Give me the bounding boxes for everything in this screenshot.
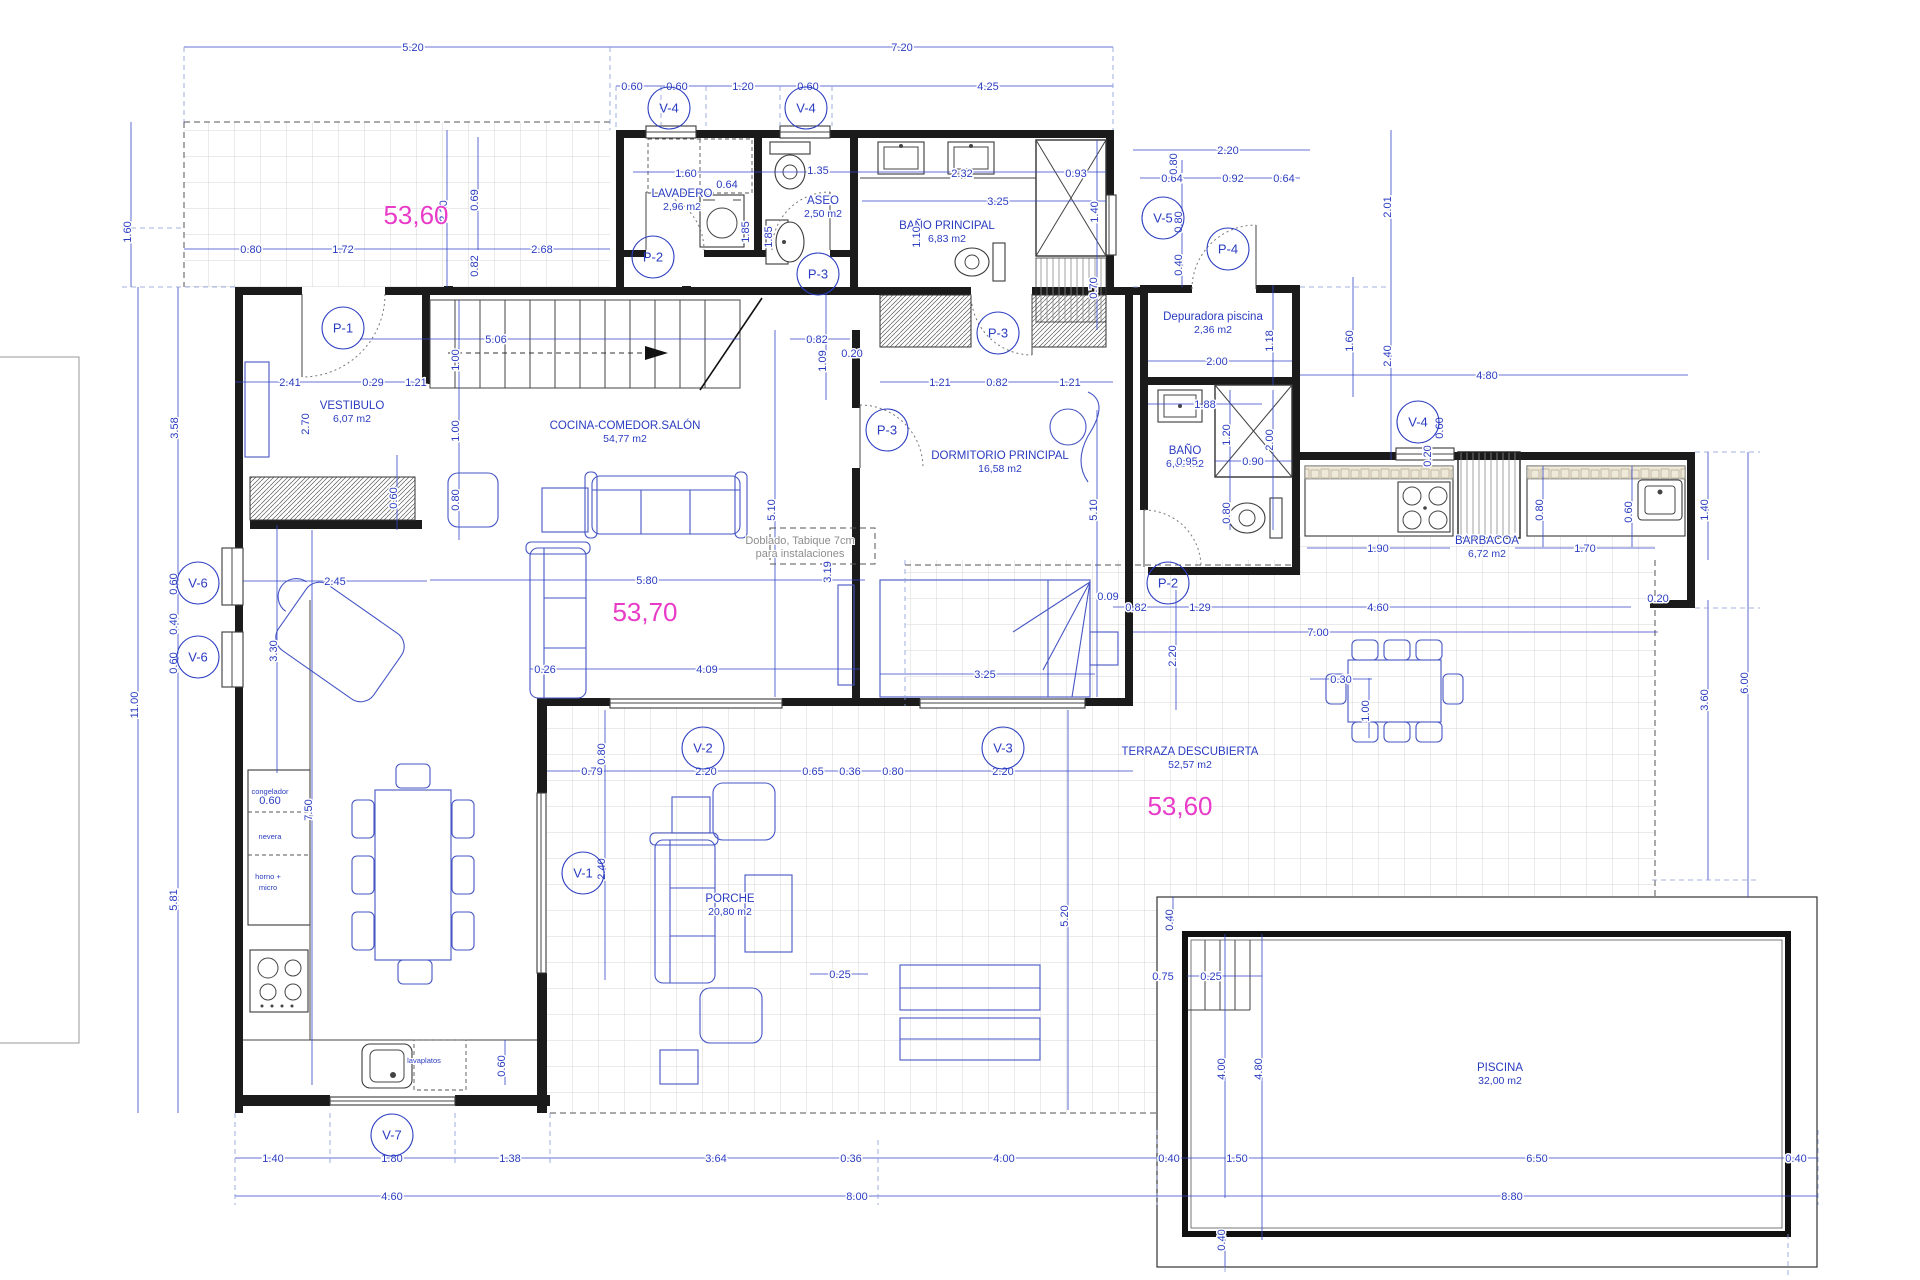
opening-tag-label: P-1 (333, 321, 353, 336)
dimension-label: 1.20 (732, 81, 753, 93)
dimension-label: 0.93 (1065, 168, 1086, 180)
dimension-label: 1.60 (1344, 330, 1356, 351)
room-area: 6,72 m2 (1468, 548, 1506, 560)
dimension-label: 0.20 (841, 348, 862, 360)
room-name: PORCHE (705, 893, 755, 905)
window-v7 (330, 1097, 455, 1105)
dimension-label: 0.70 (1088, 277, 1100, 298)
dimension-label: 4.09 (696, 664, 717, 676)
dimension-label: 3.30 (268, 640, 280, 661)
room-name: BARBACOA (1455, 535, 1519, 547)
dimension-label: 6.00 (1739, 672, 1751, 693)
window-v6-a (222, 548, 243, 605)
dimension-label: 0.40 (1785, 1153, 1806, 1165)
room-area: 6,83 m2 (928, 233, 966, 245)
dimension-label: 4.80 (1253, 1058, 1265, 1079)
dimension-label: 1.90 (1367, 543, 1388, 555)
dimension-label: 1.21 (405, 377, 426, 389)
dimension-label: 0.82 (469, 255, 481, 276)
hall-cabinet (245, 362, 269, 457)
opening-tag-label: V-1 (573, 866, 593, 881)
dimension-label: 0.82 (986, 377, 1007, 389)
dimension-label: 3.25 (987, 196, 1008, 208)
dimension-label: 0.79 (581, 766, 602, 778)
dimension-label: 1.85 (740, 221, 752, 242)
floor-plan-drawing: LAVADERO2,96 m2ASEO2,50 m2BAÑO PRINCIPAL… (0, 0, 1920, 1280)
room-area: 52,57 m2 (1168, 759, 1212, 771)
window-v2 (610, 699, 782, 708)
dimension-label: 1.60 (122, 221, 134, 242)
dimension-label: 0.29 (362, 377, 383, 389)
dimension-label: 1.88 (1194, 399, 1215, 411)
dimension-label: 1.00 (450, 420, 462, 441)
dimension-label: 5.20 (402, 42, 423, 54)
dimension-label: 1.85 (763, 226, 775, 247)
dimension-label: 0.40 (1173, 254, 1185, 275)
dimension-label: 2.20 (695, 766, 716, 778)
kitchen-table (352, 764, 474, 984)
dimension-label: 5.06 (485, 334, 506, 346)
dimension-label: 0.90 (1242, 456, 1263, 468)
sink-main-1 (878, 142, 924, 174)
dimension-label: 2.40 (1382, 345, 1394, 366)
door-p2-bath-arc (1144, 510, 1201, 567)
dimension-label: 0.82 (1125, 602, 1146, 614)
dimension-label: 2.32 (951, 168, 972, 180)
dimension-label: 2.00 (1206, 356, 1227, 368)
dimension-label: 1.29 (1189, 602, 1210, 614)
dimension-label: 1.21 (1059, 377, 1080, 389)
construction-note: Doblado, Tabique 7cmpara instalaciones (745, 535, 854, 560)
window-v1 (537, 793, 546, 973)
window-v6-b (222, 632, 243, 687)
opening-tag-label: V-6 (188, 650, 208, 665)
room-name: ASEO (807, 195, 839, 207)
dimension-label: 7.50 (303, 799, 315, 820)
surface-area-label: 53,70 (612, 597, 677, 627)
dimension-label: 4.60 (1367, 602, 1388, 614)
room-name: LAVADERO (652, 188, 713, 200)
dimension-label: 1.40 (1089, 201, 1101, 222)
dimension-label: 7.20 (891, 42, 912, 54)
hob-kitchen (250, 950, 308, 1012)
room-area: 2,96 m2 (663, 201, 701, 213)
dimension-label: 0.40 (1158, 1153, 1179, 1165)
chaise (1081, 392, 1099, 482)
appliance-label: horno + (255, 872, 281, 881)
dimension-label: 5.10 (1088, 499, 1100, 520)
room-name: VESTIBULO (320, 400, 385, 412)
surface-area-label: 53,60 (383, 200, 448, 230)
dimension-label: 0.09 (1097, 591, 1118, 603)
opening-tag-label: P-3 (877, 423, 897, 438)
opening-tag-label: P-2 (1158, 576, 1178, 591)
dimension-label: 3.60 (1699, 689, 1711, 710)
dimension-label: 0.80 (450, 489, 462, 510)
window-v4-a (646, 126, 696, 138)
side-table (542, 488, 588, 532)
dimension-label: 4.00 (1216, 1058, 1228, 1079)
dimension-label: 8.00 (846, 1191, 867, 1203)
dimension-label: 1.10 (911, 226, 923, 247)
bbq-sink (1638, 480, 1682, 520)
window-v3 (920, 699, 1085, 708)
door-p1-arc (302, 294, 385, 377)
door-p4-arc (1192, 225, 1256, 289)
dimension-label: 0.36 (839, 766, 860, 778)
dimension-label: 1.21 (929, 377, 950, 389)
dimension-label: 3.58 (169, 417, 181, 438)
dimension-label: 0.64 (716, 179, 737, 191)
room-name: TERRAZA DESCUBIERTA (1122, 746, 1259, 758)
dimension-label: 0.65 (802, 766, 823, 778)
bbq-stone-left (1305, 466, 1453, 479)
dimension-label: 2.20 (1167, 645, 1179, 666)
dimension-label: 1.38 (499, 1153, 520, 1165)
dimension-label: 1.00 (450, 349, 462, 370)
dimension-label: 5.80 (636, 575, 657, 587)
appliance-label: micro (259, 883, 277, 892)
dimension-label: 8.80 (1501, 1191, 1522, 1203)
floor-plan-canvas: LAVADERO2,96 m2ASEO2,50 m2BAÑO PRINCIPAL… (0, 0, 1920, 1280)
dimension-label: 0.95 (1176, 456, 1197, 468)
dimension-label: 0.80 (882, 766, 903, 778)
dimension-label: 0.40 (1216, 1229, 1228, 1250)
window-v4-b (780, 126, 830, 138)
bbq-hob (1398, 482, 1450, 532)
dimension-label: 0.80 (1221, 502, 1233, 523)
dimension-label: 2.45 (324, 576, 345, 588)
washing-machine (700, 195, 744, 247)
dimension-label: 1.09 (817, 350, 829, 371)
opening-tag-label: V-4 (1408, 415, 1428, 430)
dimension-label: 1.50 (1226, 1153, 1247, 1165)
dimension-label: 0.75 (1152, 971, 1173, 983)
pool-side-tiles (905, 897, 1157, 1113)
dimension-label: 4.00 (993, 1153, 1014, 1165)
dimension-label: 0.80 (1168, 153, 1180, 174)
dimension-label: 2.70 (300, 413, 312, 434)
room-name: PISCINA (1477, 1062, 1523, 1074)
dimension-label: 2.41 (279, 377, 300, 389)
dimension-label: 4.25 (977, 81, 998, 93)
dimension-label: 0.20 (1422, 445, 1434, 466)
dimension-label: 0.60 (496, 1055, 508, 1076)
opening-tag-label: V-5 (1153, 211, 1173, 226)
dimension-label: 1.35 (807, 165, 828, 177)
door-p3-closet-arc (971, 294, 1032, 355)
dimension-label: 0.40 (168, 613, 180, 634)
appliance-label: nevera (259, 832, 283, 841)
dimension-label: 4.80 (1476, 370, 1497, 382)
dimension-label: 1.00 (1360, 700, 1372, 721)
bbq-chimney (1458, 452, 1520, 538)
room-area: 2,50 m2 (804, 208, 842, 220)
opening-tag-label: V-3 (993, 741, 1013, 756)
surface-area-label: 53,60 (1147, 791, 1212, 821)
dimension-label: 0.20 (1647, 593, 1668, 605)
opening-tag-label: V-4 (659, 101, 679, 116)
room-area: 16,58 m2 (978, 463, 1022, 475)
terraza-tiles (905, 537, 1655, 897)
toilet-aseo (770, 142, 810, 189)
room-area: 6,07 m2 (333, 413, 371, 425)
dimension-label: 11.00 (129, 692, 141, 719)
dimension-label: 1.18 (1264, 330, 1276, 351)
toilet-bath2 (1229, 498, 1282, 538)
room-name: COCINA-COMEDOR.SALÓN (550, 419, 701, 432)
dimension-label: 0.30 (1330, 674, 1351, 686)
dimension-label: 0.60 (388, 487, 400, 508)
opening-tag-label: V-6 (188, 576, 208, 591)
dimension-label: 1.60 (675, 168, 696, 180)
tv-unit (838, 585, 854, 685)
dimension-label: 0.60 (1623, 501, 1635, 522)
dimension-label: 2.40 (596, 858, 608, 879)
dimension-label: 0.80 (240, 244, 261, 256)
dimension-label: 1.70 (1574, 543, 1595, 555)
opening-tag-label: P-2 (643, 250, 663, 265)
room-area: 54,77 m2 (603, 433, 647, 445)
dimension-label: 0.80 (596, 743, 608, 764)
bbq-stone-right (1527, 466, 1685, 479)
dimension-label: 1.72 (332, 244, 353, 256)
dimension-label: 0.26 (534, 664, 555, 676)
dimension-label: 3.25 (974, 669, 995, 681)
room-area: 32,00 m2 (1478, 1075, 1522, 1087)
dimension-label: 7.00 (1307, 627, 1328, 639)
dimension-label: 6.50 (1526, 1153, 1547, 1165)
room-area: 20,80 m2 (708, 906, 752, 918)
room-name: DORMITORIO PRINCIPAL (931, 450, 1069, 462)
dimension-label: 1.40 (262, 1153, 283, 1165)
opening-tag-label: P-3 (808, 267, 828, 282)
dimension-label: 0.60 (621, 81, 642, 93)
room-area: 2,36 m2 (1194, 324, 1232, 336)
opening-tag-label: V-4 (796, 101, 816, 116)
dimension-label: 1.20 (1221, 424, 1233, 445)
note-line: para instalaciones (756, 548, 845, 560)
wardrobe-left (880, 295, 971, 347)
dimension-label: 2.20 (1217, 145, 1238, 157)
dimension-label: 4.60 (381, 1191, 402, 1203)
dimension-label: 0.92 (1222, 173, 1243, 185)
adjacent-sheet-border (0, 357, 79, 1043)
dimension-label: 0.60 (1434, 417, 1446, 438)
appliance-label: congelador (251, 787, 289, 796)
dimension-label: 0.80 (1534, 499, 1546, 520)
dimension-label: 0.40 (1164, 909, 1176, 930)
dimension-label: 2.68 (531, 244, 552, 256)
dimension-label: 0.25 (1200, 971, 1221, 983)
dimension-label: 5.81 (168, 889, 180, 910)
opening-tag-label: P-4 (1218, 242, 1238, 257)
dimension-label: 0.36 (840, 1153, 861, 1165)
dimension-label: 5.10 (766, 499, 778, 520)
dimension-label: 5.20 (1059, 905, 1071, 926)
dimension-label: 2.01 (1382, 196, 1394, 217)
opening-tag-label: V-2 (693, 741, 713, 756)
opening-tag-label: V-7 (382, 1128, 402, 1143)
stool (1050, 409, 1086, 445)
dimension-label: 3.19 (822, 561, 834, 582)
dimension-label: 0.64 (1273, 173, 1294, 185)
kitchen-sink (362, 1044, 412, 1088)
dimension-label: 3.64 (705, 1153, 726, 1165)
dimension-label: 0.25 (829, 969, 850, 981)
dishwasher (414, 1040, 466, 1090)
sofa-horizontal (585, 472, 747, 538)
staircase (430, 298, 762, 390)
appliance-label: lavaplatos (407, 1056, 441, 1065)
dimension-label: 0.82 (806, 334, 827, 346)
toilet-main-bath (955, 243, 1005, 281)
dimension-label: 0.69 (469, 189, 481, 210)
opening-tag-label: P-3 (988, 326, 1008, 341)
dimension-label: 0.60 (259, 795, 280, 807)
dimension-label: 2.00 (1264, 429, 1276, 450)
note-line: Doblado, Tabique 7cm (745, 535, 854, 547)
room-name: Depuradora piscina (1163, 311, 1263, 323)
dimension-label: 1.40 (1699, 499, 1711, 520)
